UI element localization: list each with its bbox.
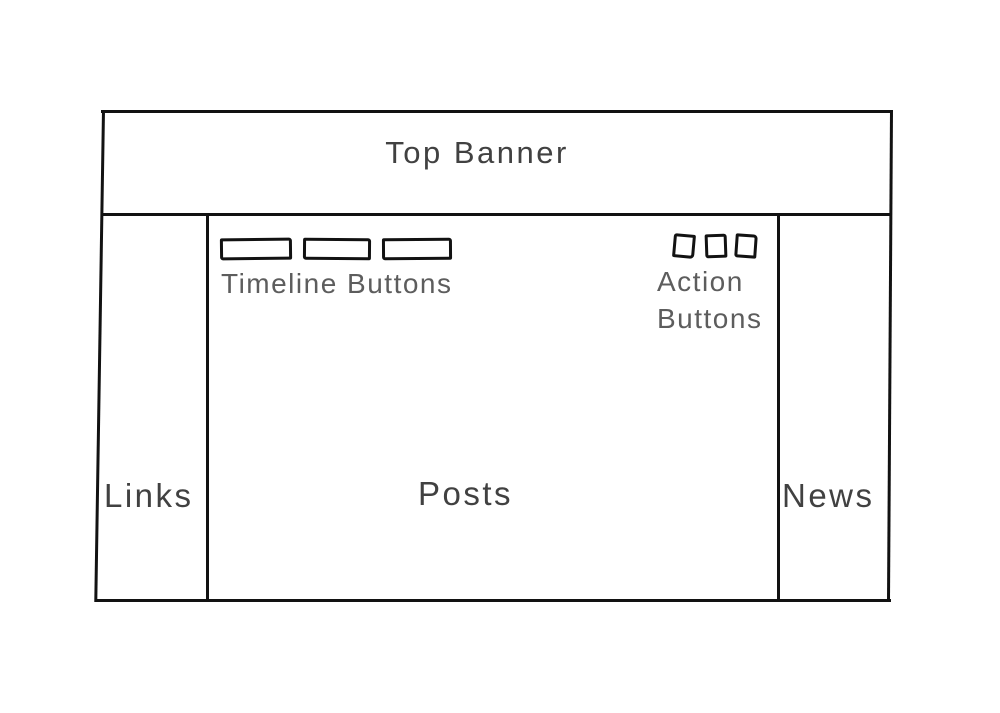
action-buttons-label: Action Buttons (657, 263, 762, 337)
timeline-button-sketch (382, 238, 452, 260)
timeline-buttons-label: Timeline Buttons (221, 268, 453, 300)
frame-right-edge (887, 110, 893, 602)
links-posts-divider (206, 214, 209, 602)
timeline-button-sketch (220, 238, 292, 261)
frame-bottom-edge (96, 599, 891, 602)
links-region-label: Links (104, 477, 194, 515)
action-buttons-label-line2: Buttons (657, 300, 762, 337)
posts-region-label: Posts (418, 475, 513, 513)
action-button-sketch (734, 233, 758, 258)
posts-news-divider (777, 214, 780, 602)
banner-bottom-line (101, 213, 891, 216)
top-banner-label: Top Banner (101, 135, 853, 171)
frame-left-edge (94, 110, 105, 602)
timeline-button-sketch (303, 238, 371, 261)
action-button-sketch (672, 233, 696, 259)
news-region-label: News (782, 477, 875, 515)
frame-top-edge (101, 110, 891, 113)
wireframe-diagram: Top Banner Links Posts News Timeline But… (101, 110, 891, 602)
action-button-sketch (705, 234, 728, 259)
action-buttons-label-line1: Action (657, 263, 762, 300)
